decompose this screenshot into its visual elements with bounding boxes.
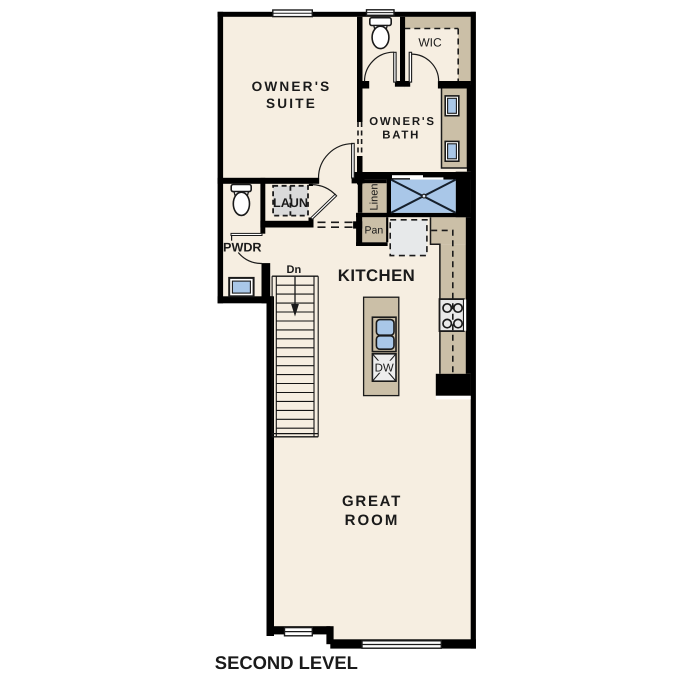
svg-text:Linen: Linen xyxy=(368,184,380,211)
svg-text:KITCHEN: KITCHEN xyxy=(338,266,415,285)
svg-text:SUITE: SUITE xyxy=(266,96,317,111)
svg-text:Pan: Pan xyxy=(365,225,384,237)
svg-text:SECOND LEVEL: SECOND LEVEL xyxy=(215,652,358,673)
svg-text:OWNER'S: OWNER'S xyxy=(252,79,332,94)
svg-text:Dn: Dn xyxy=(287,264,302,276)
svg-text:ROOM: ROOM xyxy=(345,512,400,529)
svg-text:BATH: BATH xyxy=(382,130,420,142)
svg-text:WIC: WIC xyxy=(418,36,442,50)
svg-text:PWDR: PWDR xyxy=(223,241,261,255)
svg-text:GREAT: GREAT xyxy=(342,493,402,510)
svg-text:DW: DW xyxy=(375,362,394,374)
svg-text:LAUN: LAUN xyxy=(273,196,308,210)
svg-text:OWNER'S: OWNER'S xyxy=(369,116,436,128)
